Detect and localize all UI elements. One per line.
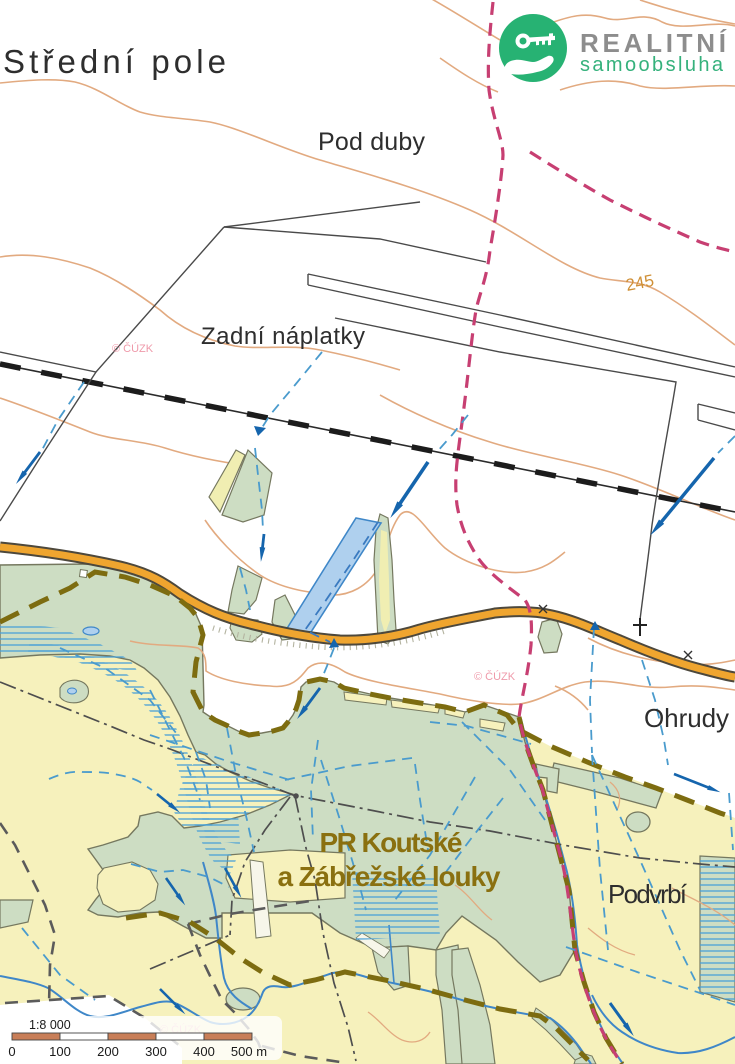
svg-text:Podvrbí: Podvrbí [608, 879, 688, 909]
svg-text:© ČÚZK: © ČÚZK [112, 342, 154, 355]
svg-text:Zadní náplatky: Zadní náplatky [201, 323, 365, 350]
svg-text:Ohrudy: Ohrudy [644, 703, 729, 733]
svg-text:PR Koutské: PR Koutské [320, 827, 463, 858]
svg-text:400: 400 [193, 1044, 215, 1059]
svg-text:Pod duby: Pod duby [318, 128, 426, 156]
svg-text:samoobsluha: samoobsluha [580, 54, 724, 76]
svg-text:100: 100 [49, 1044, 71, 1059]
svg-text:300: 300 [145, 1044, 167, 1059]
svg-text:a Zábřežské louky: a Zábřežské louky [278, 861, 501, 892]
svg-text:1:8 000: 1:8 000 [29, 1018, 71, 1032]
svg-text:200: 200 [97, 1044, 119, 1059]
svg-text:© ČÚZK: © ČÚZK [474, 670, 516, 683]
svg-text:0: 0 [8, 1044, 15, 1059]
svg-text:500 m: 500 m [231, 1044, 267, 1059]
